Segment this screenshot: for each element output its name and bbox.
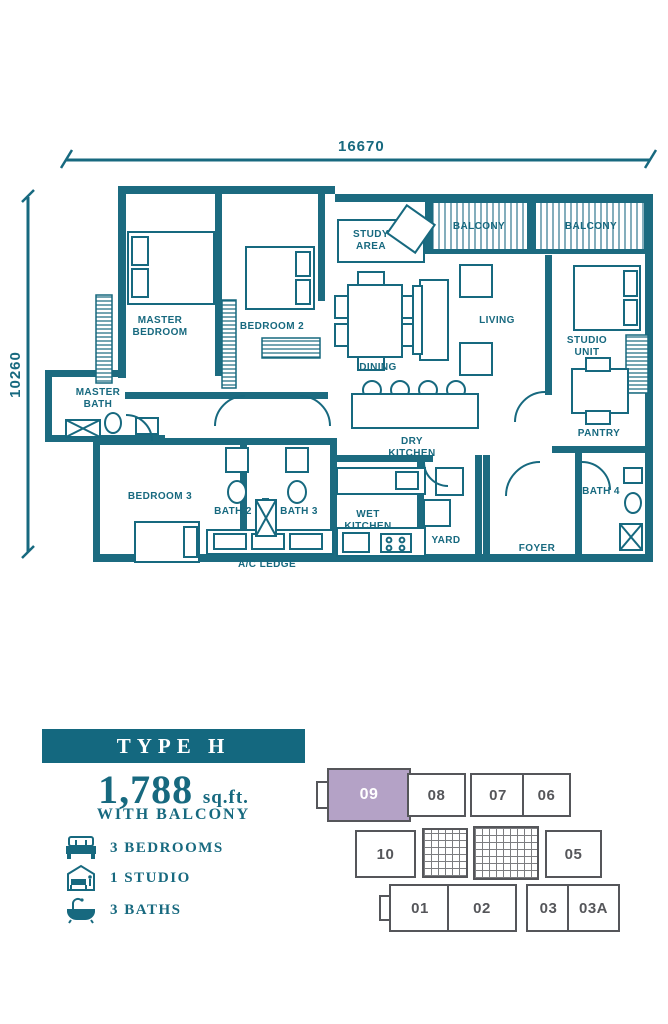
room-label-dry-kitchen: DRY KITCHEN — [383, 436, 441, 460]
room-label-study-area: STUDY AREA — [347, 229, 395, 253]
keyplan-core-block — [473, 826, 539, 880]
keyplan-unit-03A: 03A — [567, 884, 620, 932]
room-label-balcony1: BALCONY — [453, 221, 505, 233]
keyplan-balcony-tab — [379, 895, 393, 921]
keyplan-balcony-tab — [316, 781, 331, 809]
room-label-bath2: BATH 2 — [214, 506, 252, 518]
keyplan-unit-07: 07 — [470, 773, 526, 817]
floor-plan-graphic — [0, 0, 668, 620]
feature-baths: 3 BATHS — [64, 896, 182, 924]
room-label-bedroom3: BEDROOM 3 — [128, 491, 192, 503]
feature-baths-label: 3 BATHS — [110, 902, 182, 919]
area-unit: sq.ft. — [197, 787, 249, 808]
room-label-foyer: FOYER — [519, 543, 555, 555]
brochure-page: 16670 10260 MASTER BEDROOM BEDROOM 2 BED… — [0, 0, 668, 1024]
area-note: WITH BALCONY — [42, 806, 305, 824]
feature-studio: 1 STUDIO — [64, 864, 191, 892]
keyplan-unit-03: 03 — [526, 884, 571, 932]
room-label-pantry: PANTRY — [578, 428, 620, 440]
keyplan-unit-06: 06 — [522, 773, 571, 817]
room-label-wet-kitchen: WET KITCHEN — [340, 509, 396, 533]
room-label-bath4: BATH 4 — [582, 486, 620, 498]
room-label-bath3: BATH 3 — [280, 506, 318, 518]
dimension-left-label: 10260 — [7, 351, 24, 398]
feature-bedrooms: 3 BEDROOMS — [64, 834, 224, 862]
bath-icon — [64, 896, 98, 924]
studio-icon — [64, 864, 98, 892]
keyplan-unit-05: 05 — [545, 830, 602, 878]
keyplan-unit-01: 01 — [389, 884, 451, 932]
room-label-yard: YARD — [431, 535, 460, 547]
dimension-top-label: 16670 — [338, 138, 385, 155]
keyplan-unit-09: 09 — [327, 768, 411, 822]
room-label-master-bedroom: MASTER BEDROOM — [129, 315, 191, 339]
room-label-dining: DINING — [359, 362, 396, 374]
bed-icon — [64, 834, 98, 862]
room-label-bedroom2: BEDROOM 2 — [240, 321, 304, 333]
room-label-ac-ledge: A/C LEDGE — [238, 559, 296, 571]
feature-studio-label: 1 STUDIO — [110, 870, 191, 887]
floor-plan: 16670 10260 MASTER BEDROOM BEDROOM 2 BED… — [0, 0, 668, 620]
keyplan-unit-02: 02 — [447, 884, 517, 932]
type-banner: TYPE H — [42, 729, 305, 763]
keyplan-unit-08: 08 — [407, 773, 466, 817]
room-label-master-bath: MASTER BATH — [72, 387, 124, 411]
room-label-studio-unit: STUDIO UNIT — [561, 335, 613, 359]
type-label: TYPE H — [117, 734, 231, 759]
keyplan-core-block — [422, 828, 468, 878]
feature-bedrooms-label: 3 BEDROOMS — [110, 840, 224, 857]
room-label-balcony2: BALCONY — [565, 221, 617, 233]
room-label-living: LIVING — [479, 315, 515, 327]
keyplan-unit-10: 10 — [355, 830, 416, 878]
